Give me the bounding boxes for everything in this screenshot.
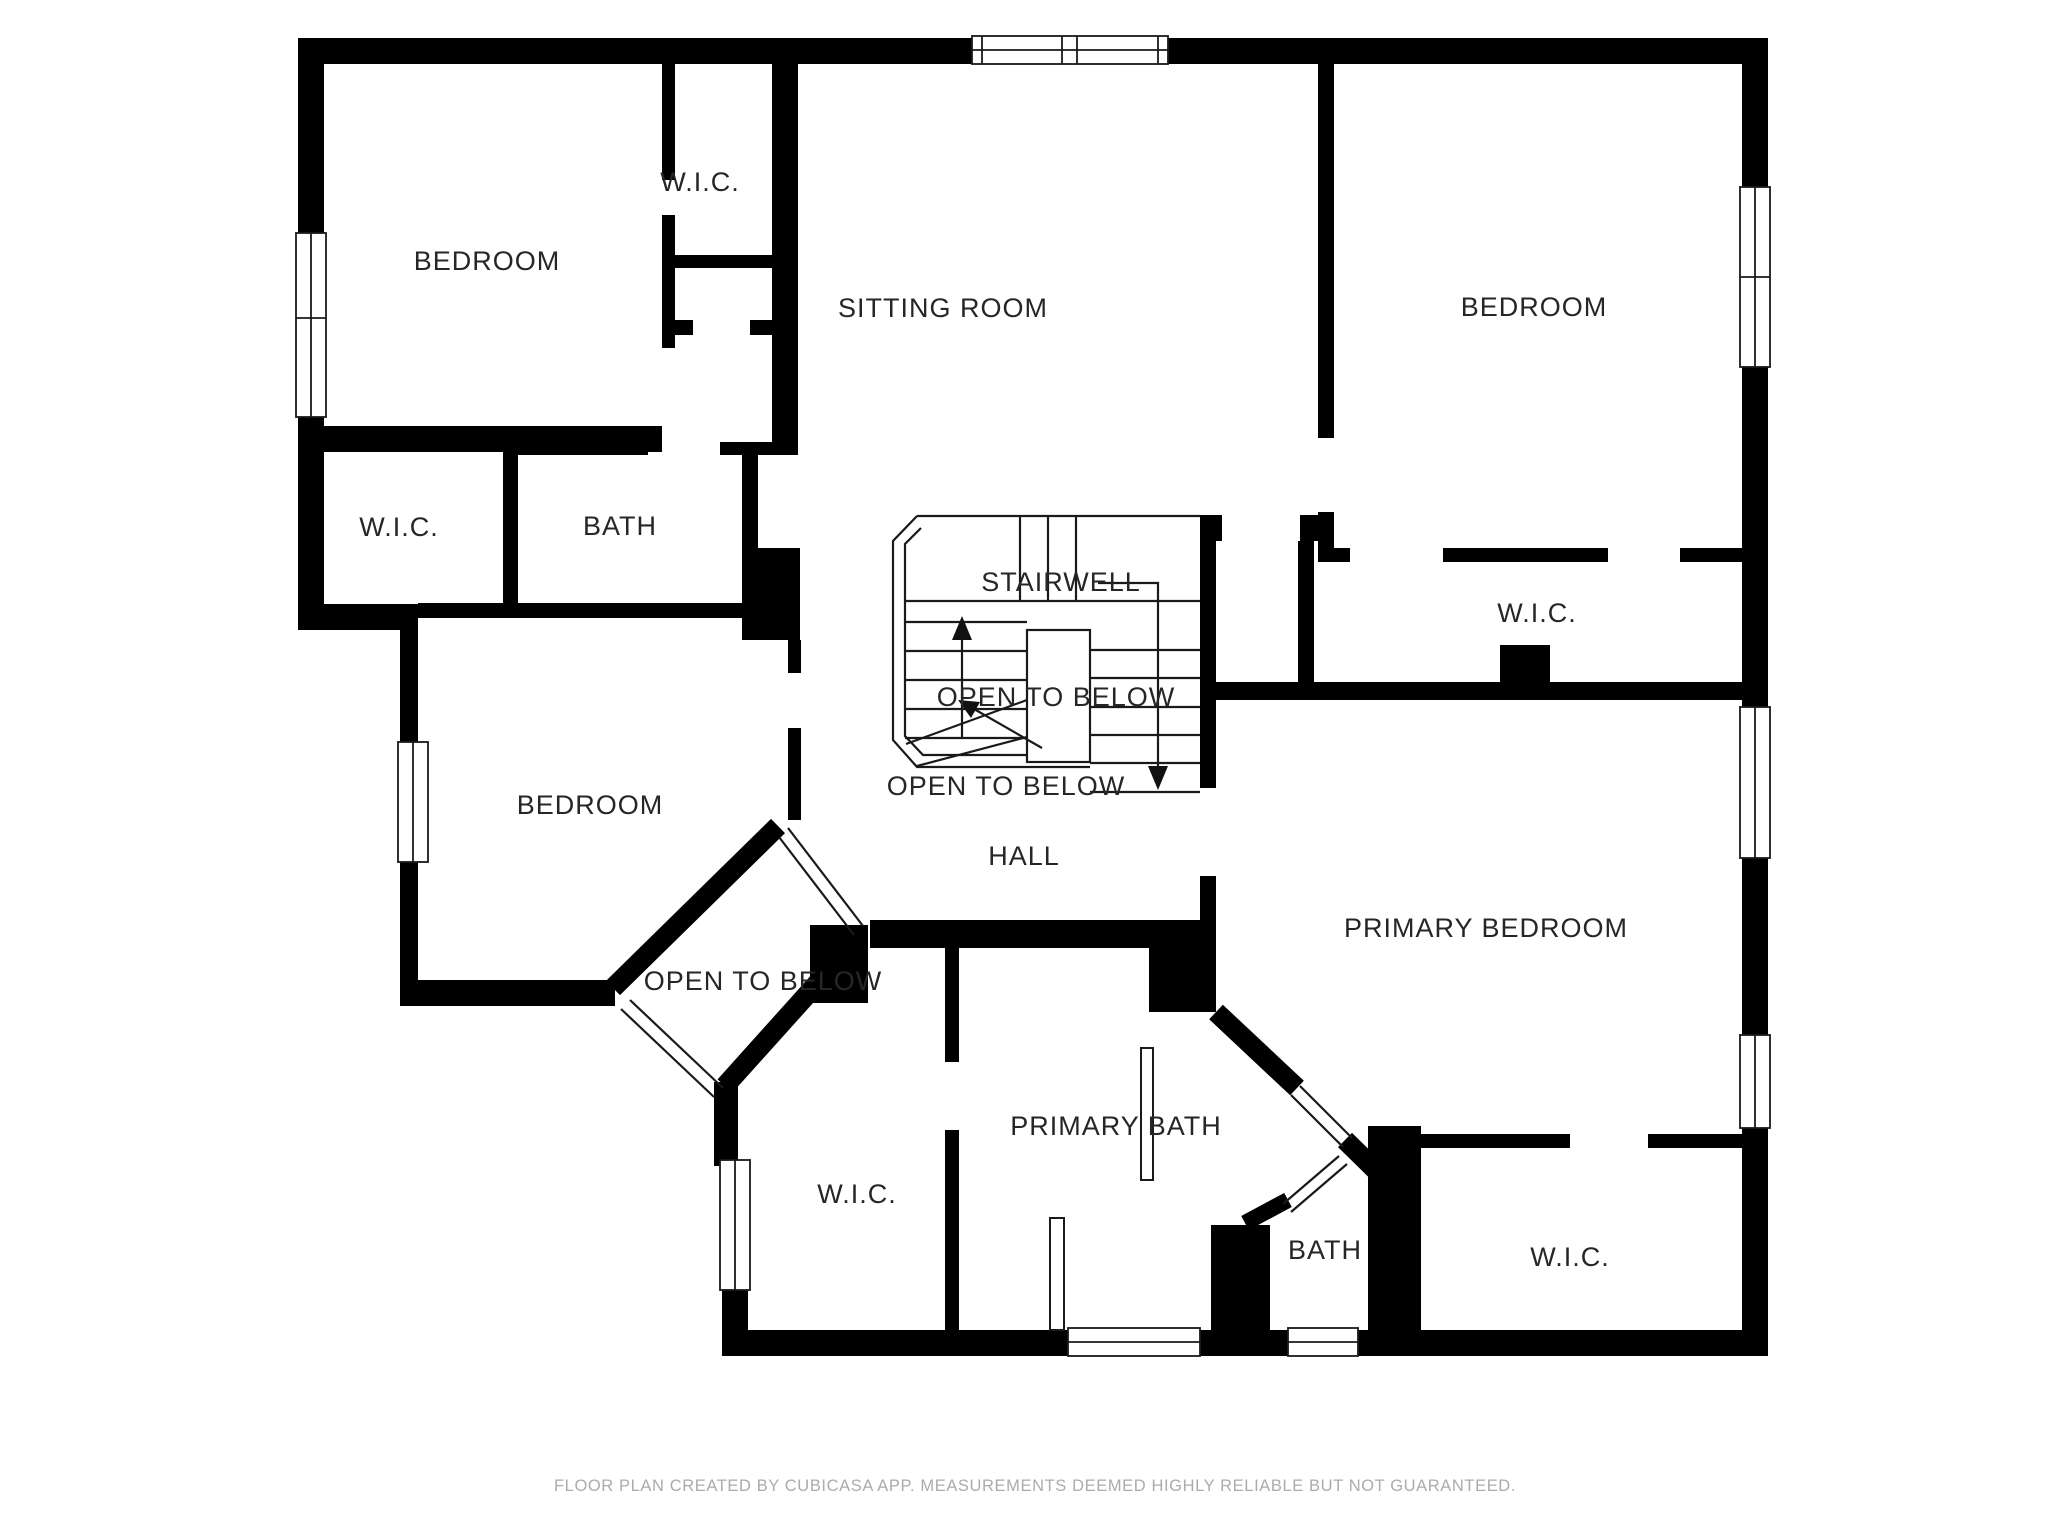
wall-nook-bottom-b: [750, 320, 772, 335]
window-bath-bottom: [1288, 1328, 1358, 1356]
label-bath-bottom-right: BATH: [1288, 1235, 1362, 1265]
wall-wicR-door-block: [1500, 645, 1550, 700]
label-wic-right: W.I.C.: [1497, 598, 1577, 628]
railing-diamond-lower-left-b: [621, 1009, 714, 1097]
window-wicBL-left: [720, 1160, 750, 1290]
label-stairwell: STAIRWELL: [981, 567, 1141, 597]
window-bedroomML-left: [398, 742, 428, 862]
label-bedroom-mid-left: BEDROOM: [517, 790, 664, 820]
wall-hall-junction-block: [1149, 920, 1216, 1012]
label-wic-top: W.I.C.: [660, 167, 740, 197]
window-sitting-top: [972, 36, 1168, 64]
wall-bath-bottom: [418, 603, 742, 618]
wall-exterior-bottom: [722, 1330, 1768, 1356]
wall-wicBR-top-b: [1648, 1134, 1742, 1148]
railing-diamond-lower-left-a: [630, 1000, 723, 1088]
footer-credit-text: FLOOR PLAN CREATED BY CUBICASA APP. MEAS…: [554, 1477, 1516, 1495]
wall-diamond-upper-left: [613, 826, 778, 988]
floor-plan-drawing: BEDROOM W.I.C. SITTING ROOM BEDROOM W.I.…: [0, 0, 2048, 1536]
wall-stair-right-a: [1200, 516, 1216, 788]
wall-wic-top-bottom: [675, 255, 772, 268]
doorjamb-pbath-bath-a: [1283, 1156, 1339, 1204]
label-hall: HALL: [988, 841, 1060, 871]
floor-plan-page: BEDROOM W.I.C. SITTING ROOM BEDROOM W.I.…: [0, 0, 2048, 1536]
wall-bath-right: [742, 455, 758, 548]
stairs-down-arrowhead-icon: [1148, 766, 1168, 790]
wall-wicBR-top-a: [1414, 1134, 1570, 1148]
label-wic-mid-left: W.I.C.: [359, 512, 439, 542]
wall-pbath-left-a: [945, 948, 959, 1062]
window-pbath-bottom: [1068, 1328, 1200, 1356]
doorjamb-pbath-bath-b: [1291, 1164, 1347, 1212]
wall-pbedroom-chamfer: [1216, 1012, 1297, 1088]
shower-glass-partition: [1050, 1218, 1064, 1330]
window-pbedroom-right-upper: [1740, 707, 1770, 858]
label-wic-bottom-left: W.I.C.: [817, 1179, 897, 1209]
window-pbedroom-right-lower: [1740, 1035, 1770, 1128]
wall-bath-top-b: [720, 442, 772, 455]
label-bedroom-top-left: BEDROOM: [414, 246, 561, 276]
label-bedroom-top-right: BEDROOM: [1461, 292, 1608, 322]
wall-pbath-bath-block: [1211, 1225, 1270, 1330]
wall-bedroomML-right-a: [788, 640, 801, 673]
wall-bedroomTR-left-a: [1318, 64, 1334, 438]
wall-bedroom-mid-bottom: [400, 980, 615, 1006]
fixtures: [1050, 1048, 1153, 1330]
window-bedroomTR-right: [1740, 187, 1770, 367]
label-primary-bedroom: PRIMARY BEDROOM: [1344, 913, 1628, 943]
label-open-to-below-diamond: OPEN TO BELOW: [644, 966, 883, 996]
wall-bath-block-diagonal: [1245, 1200, 1288, 1223]
railing-diamond-upper-right-b: [779, 837, 854, 935]
wall-bath-corner-block: [742, 548, 800, 640]
label-sitting-room: SITTING ROOM: [838, 293, 1048, 323]
window-bedroomTL-left: [296, 233, 326, 417]
wall-bath-top-a: [503, 442, 648, 455]
wall-bedroomTR-bottom-a: [1318, 548, 1350, 562]
label-bath-mid-left: BATH: [583, 511, 657, 541]
label-primary-bath: PRIMARY BATH: [1010, 1111, 1222, 1141]
wall-sitting-west: [772, 64, 798, 455]
wall-wicR-bottom: [1200, 682, 1742, 700]
wall-bedroomML-right-b: [788, 728, 801, 820]
wall-bedroomTR-bottom-b: [1443, 548, 1608, 562]
wall-pbath-left-b: [945, 1130, 959, 1330]
railing-diamond-upper-right-a: [788, 828, 863, 926]
label-open-to-below-stairwell: OPEN TO BELOW: [937, 682, 1176, 712]
label-wic-bottom-right: W.I.C.: [1530, 1242, 1610, 1272]
wall-wic-bath-divider: [503, 442, 518, 604]
label-open-to-below-hall: OPEN TO BELOW: [887, 771, 1126, 801]
wall-nook-bottom-a: [662, 320, 693, 335]
stairs-up-arrowhead-icon: [952, 616, 972, 640]
wall-bedroomTR-bottom-c: [1680, 548, 1742, 562]
wall-corridor-right: [1298, 541, 1314, 700]
wall-bedroomTL-wic-a: [662, 64, 675, 180]
wall-diamond-stub: [714, 1082, 738, 1166]
stairwell-drawing: [893, 516, 1200, 792]
